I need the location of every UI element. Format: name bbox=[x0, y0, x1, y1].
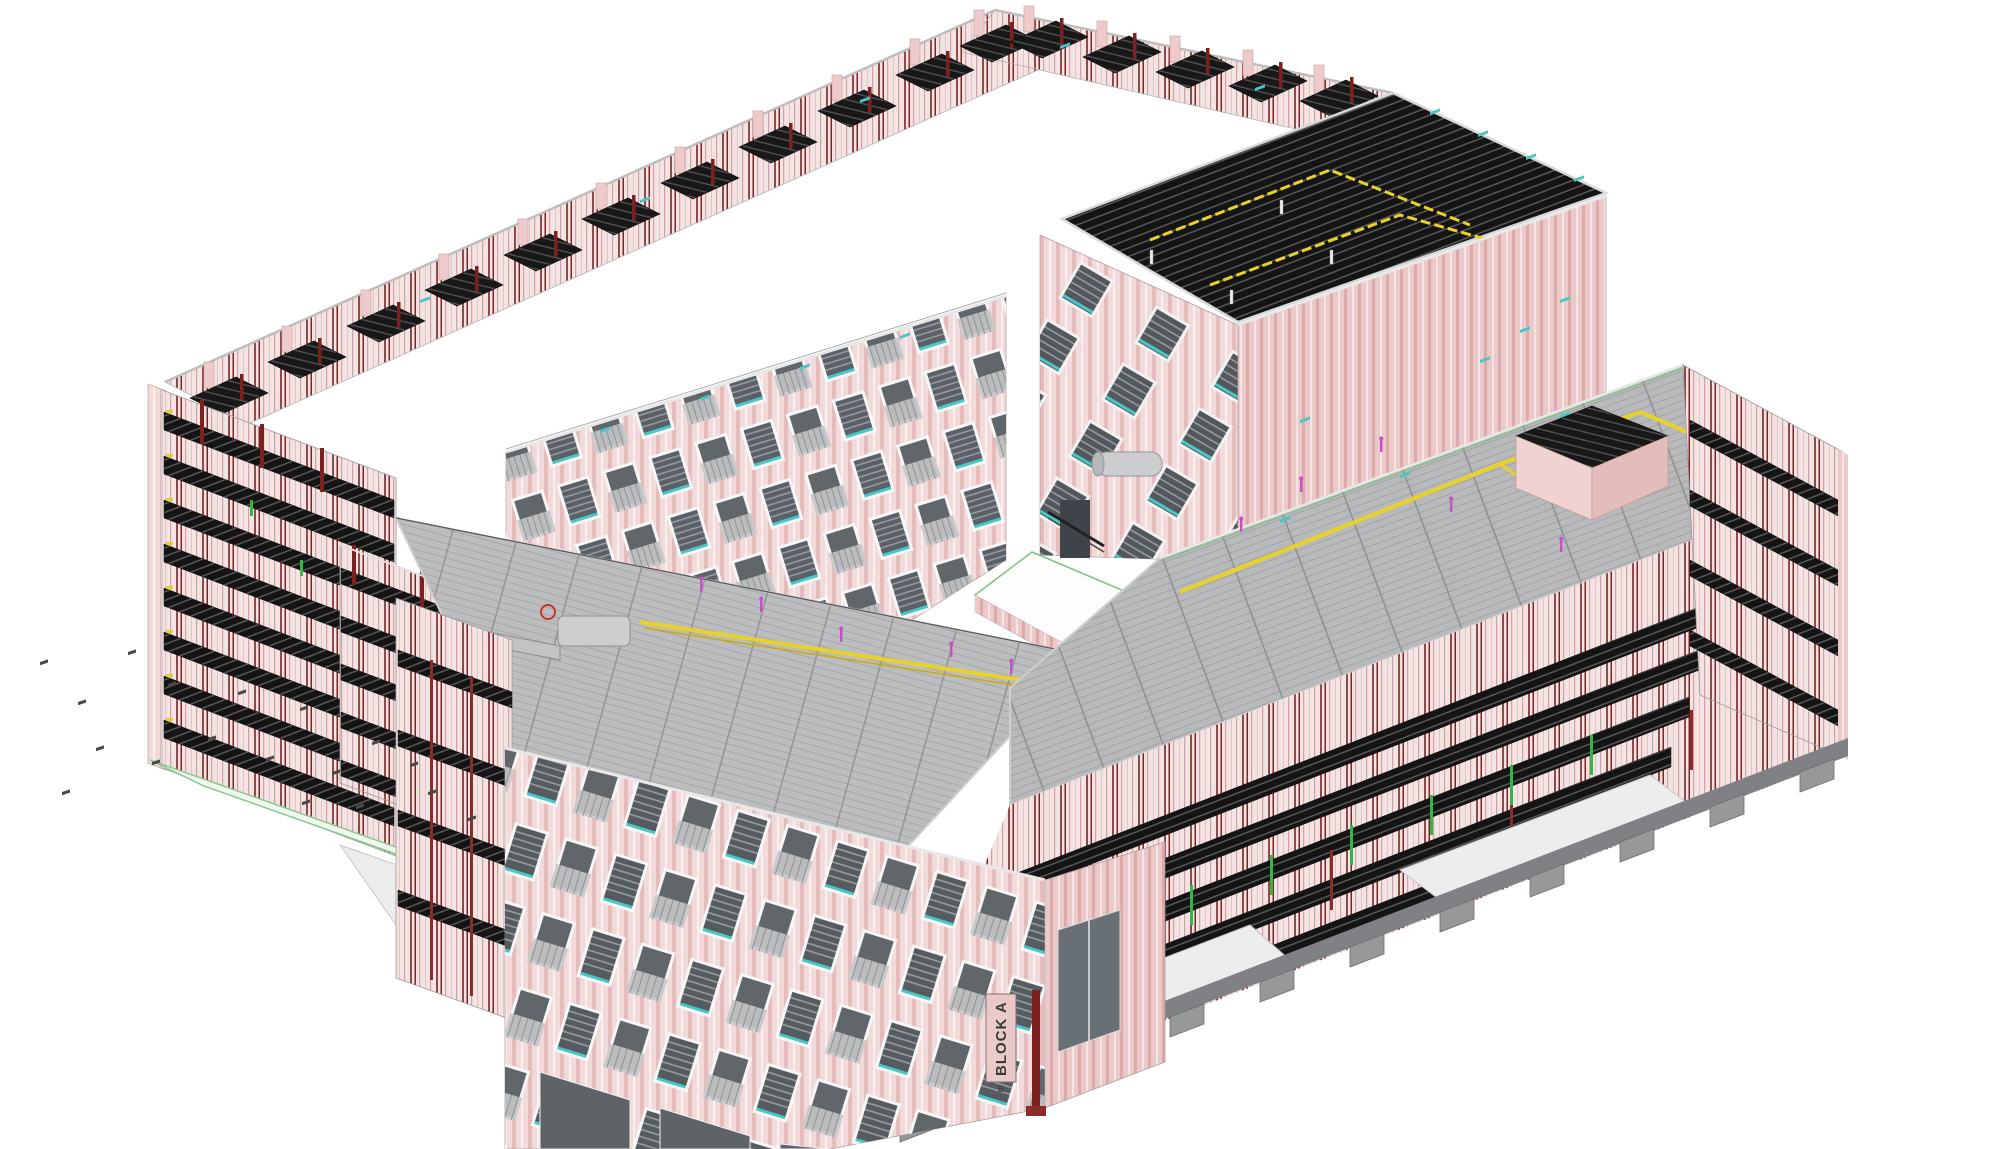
bim-model-svg: BLOCK A B bbox=[0, 0, 2000, 1149]
block-a-sublabel: B bbox=[998, 1084, 1004, 1094]
block-a-sign: BLOCK A B bbox=[986, 994, 1016, 1094]
right-wing-ahu-unit bbox=[1092, 452, 1162, 476]
bim-viewport[interactable]: BLOCK A B bbox=[0, 0, 2000, 1149]
block-a-label: BLOCK A bbox=[993, 1001, 1010, 1076]
entrance-column bbox=[1032, 990, 1040, 1110]
front-block-left-section bbox=[396, 598, 512, 1020]
